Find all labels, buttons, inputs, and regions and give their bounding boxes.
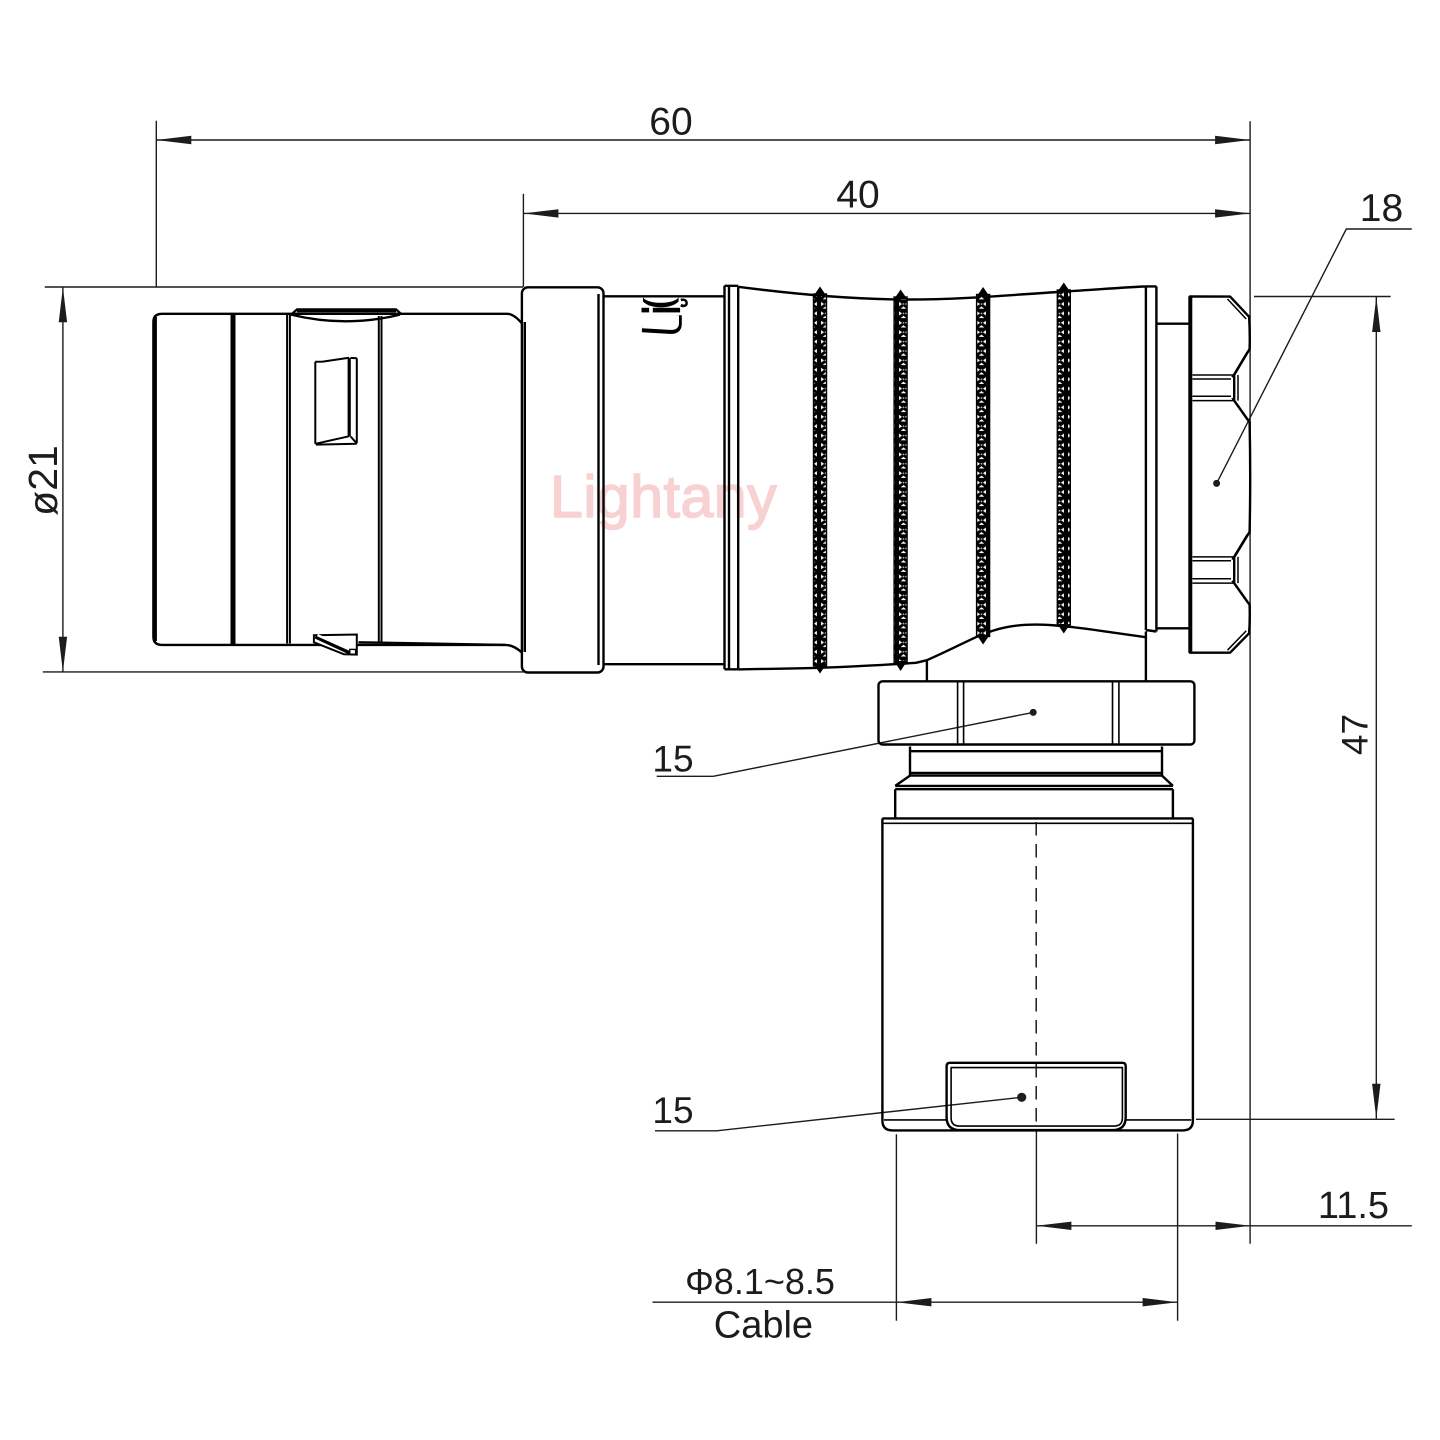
- svg-text:Lightany: Lightany: [550, 464, 777, 530]
- svg-text:ø21: ø21: [20, 445, 66, 516]
- svg-text:18: 18: [1360, 187, 1403, 230]
- svg-text:60: 60: [649, 101, 692, 144]
- svg-text:15: 15: [652, 1090, 693, 1131]
- svg-text:15: 15: [652, 738, 693, 779]
- svg-text:Cable: Cable: [714, 1305, 813, 1347]
- svg-text:47: 47: [1335, 714, 1376, 755]
- svg-text:Φ8.1~8.5: Φ8.1~8.5: [685, 1261, 835, 1302]
- svg-text:11.5: 11.5: [1318, 1185, 1389, 1227]
- svg-text:40: 40: [836, 173, 879, 216]
